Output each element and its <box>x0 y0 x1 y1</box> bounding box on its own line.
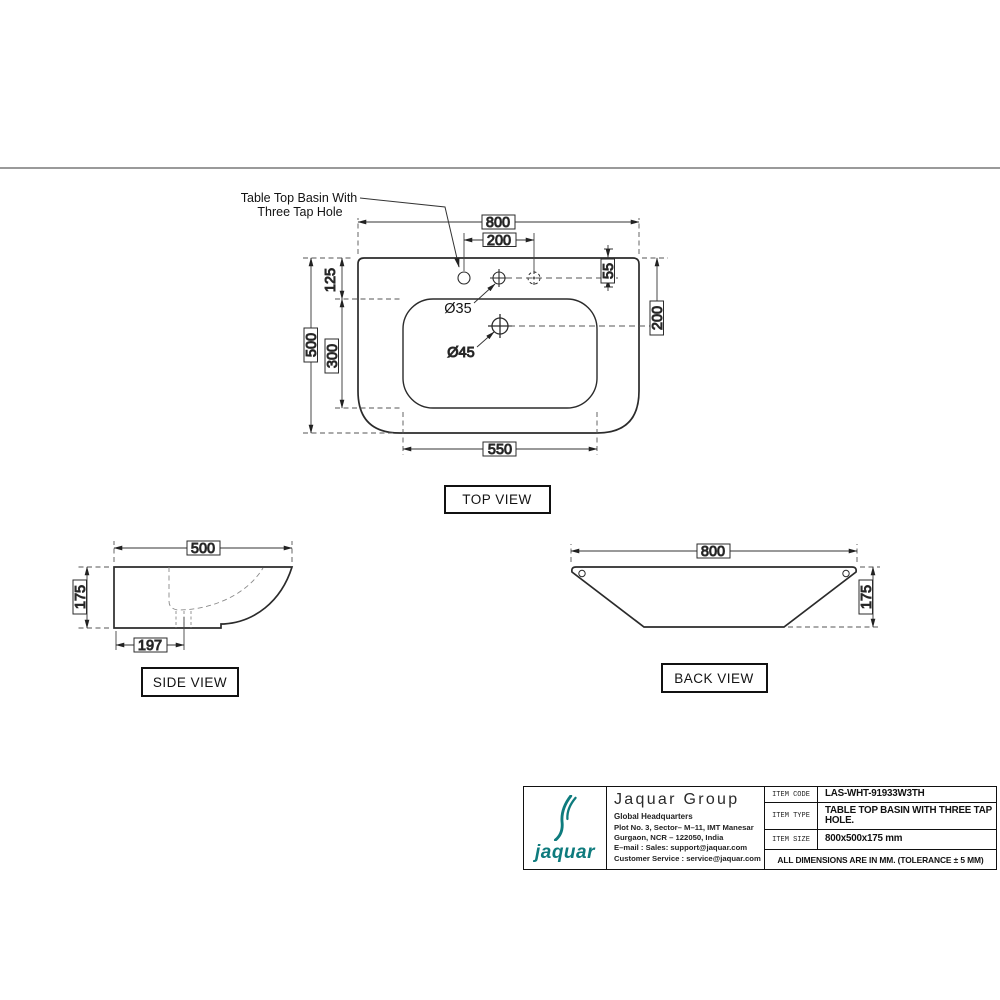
item-info-table: ITEM CODE LAS-WHT-91933W3TH ITEM TYPE TA… <box>765 787 996 869</box>
side-dim-175-label: 175 <box>73 585 89 609</box>
dim-125-label: 125 <box>323 268 339 292</box>
item-size-value: 800x500x175 mm <box>818 830 996 849</box>
dim-500-label: 500 <box>304 333 320 357</box>
dimensions-note: ALL DIMENSIONS ARE IN MM. (TOLERANCE ± 5… <box>765 850 996 869</box>
back-view-label: BACK VIEW <box>674 671 754 686</box>
jaquar-logo-icon <box>552 795 578 841</box>
side-outline <box>114 567 292 628</box>
annotation-leader <box>360 198 459 267</box>
dia35-label: Ø35 <box>444 301 471 317</box>
company-customer-service: Customer Service : service@jaquar.com <box>614 854 764 864</box>
side-view-label: SIDE VIEW <box>153 675 227 690</box>
item-type-row: ITEM TYPE TABLE TOP BASIN WITH THREE TAP… <box>765 803 996 830</box>
back-dim-175-label: 175 <box>859 585 875 609</box>
brand-logo-text: jaquar <box>535 842 595 864</box>
item-size-row: ITEM SIZE 800x500x175 mm <box>765 830 996 850</box>
annotation-line2: Three Tap Hole <box>257 205 342 219</box>
dim-200-drain-label: 200 <box>650 306 666 330</box>
top-view-label: TOP VIEW <box>462 492 532 507</box>
annotation-line1: Table Top Basin With <box>241 191 358 205</box>
dim-800-label: 800 <box>486 215 510 231</box>
company-address-2: Gurgaon, NCR – 122050, India <box>614 833 764 843</box>
dim-300-label: 300 <box>325 344 341 368</box>
side-dim-197-label: 197 <box>138 638 162 654</box>
company-email: E–mail : Sales: support@jaquar.com <box>614 843 764 853</box>
side-drain-hidden <box>176 611 191 628</box>
back-view-label-box: BACK VIEW <box>662 664 767 692</box>
item-code-label: ITEM CODE <box>765 787 818 802</box>
back-outline <box>572 567 856 627</box>
item-type-label: ITEM TYPE <box>765 803 818 829</box>
side-bowl-hidden <box>169 567 263 610</box>
title-block: jaquar Jaquar Group Global Headquarters … <box>523 786 997 870</box>
side-view: 500 175 197 <box>73 541 292 654</box>
dim-55-label: 55 <box>601 263 617 279</box>
mount-hole-left <box>579 570 585 576</box>
tap-hole-center <box>490 269 508 287</box>
dia45-leader <box>477 332 494 347</box>
back-view: 800 175 <box>571 544 880 627</box>
company-hq: Global Headquarters <box>614 812 764 821</box>
item-code-value: LAS-WHT-91933W3TH <box>818 787 996 802</box>
dim-200-taps-label: 200 <box>487 233 511 249</box>
mount-hole-right <box>843 570 849 576</box>
item-type-value: TABLE TOP BASIN WITH THREE TAP HOLE. <box>818 803 996 829</box>
company-cell: Jaquar Group Global Headquarters Plot No… <box>607 787 765 869</box>
drawing-sheet: 800 200 55 <box>0 0 1000 1000</box>
dia45-label: Ø45 <box>447 345 474 361</box>
tap-hole-left <box>458 272 470 284</box>
top-view: 800 200 55 <box>303 198 668 458</box>
company-name: Jaquar Group <box>614 791 764 809</box>
item-size-label: ITEM SIZE <box>765 830 818 849</box>
brand-logo-cell: jaquar <box>524 787 607 869</box>
back-dim-800-label: 800 <box>701 544 725 560</box>
side-view-label-box: SIDE VIEW <box>142 668 238 696</box>
dim-550-label: 550 <box>488 442 512 458</box>
dia35-leader <box>474 284 495 303</box>
item-code-row: ITEM CODE LAS-WHT-91933W3TH <box>765 787 996 803</box>
side-dim-500-label: 500 <box>191 541 215 557</box>
company-address-1: Plot No. 3, Sector– M–11, IMT Manesar <box>614 823 764 833</box>
top-view-label-box: TOP VIEW <box>445 486 550 513</box>
